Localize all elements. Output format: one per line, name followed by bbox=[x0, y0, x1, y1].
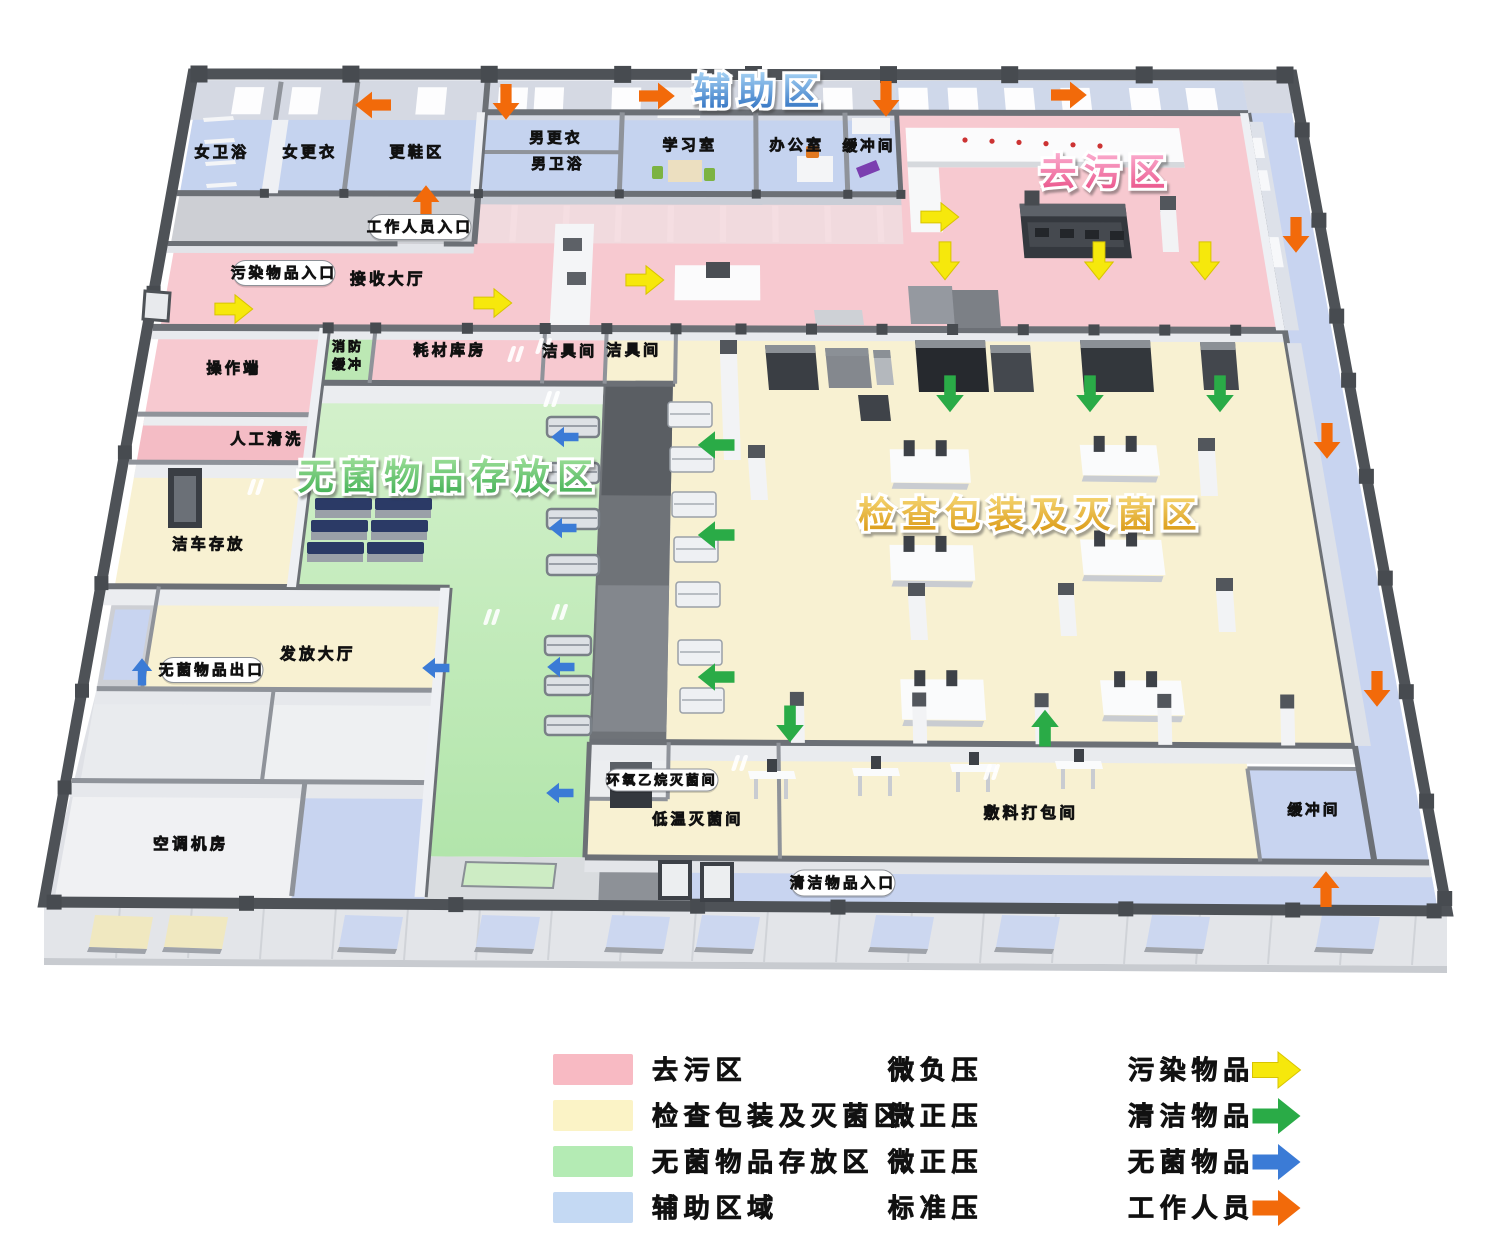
svg-text:污染物品: 污染物品 bbox=[1128, 1055, 1255, 1085]
svg-text:女更衣: 女更衣 bbox=[283, 143, 338, 161]
svg-text:缓冲: 缓冲 bbox=[332, 357, 364, 372]
svg-text:辅助区域: 辅助区域 bbox=[652, 1193, 779, 1223]
svg-text:女卫浴: 女卫浴 bbox=[195, 143, 250, 161]
svg-text:男卫浴: 男卫浴 bbox=[531, 155, 584, 173]
svg-text:空调机房: 空调机房 bbox=[153, 834, 229, 853]
svg-text:敷料打包间: 敷料打包间 bbox=[984, 803, 1079, 822]
svg-text:人工清洗: 人工清洗 bbox=[230, 430, 303, 448]
svg-text:清洁物品入口: 清洁物品入口 bbox=[790, 874, 896, 892]
svg-text:环氧乙烷灭菌间: 环氧乙烷灭菌间 bbox=[606, 773, 717, 788]
svg-text:缓冲间: 缓冲间 bbox=[842, 137, 895, 155]
svg-text:耗材库房: 耗材库房 bbox=[413, 341, 486, 359]
svg-text:清洁物品: 清洁物品 bbox=[1128, 1101, 1255, 1131]
svg-text:洁具间: 洁具间 bbox=[607, 341, 662, 359]
svg-text:接收大厅: 接收大厅 bbox=[350, 269, 426, 288]
svg-text:无菌物品存放区: 无菌物品存放区 bbox=[652, 1147, 874, 1177]
svg-text:无菌物品: 无菌物品 bbox=[1128, 1147, 1255, 1177]
svg-text:去污区: 去污区 bbox=[1039, 152, 1172, 193]
svg-text:操作端: 操作端 bbox=[207, 359, 262, 377]
svg-text:标准压: 标准压 bbox=[888, 1193, 983, 1223]
svg-text:消防: 消防 bbox=[332, 339, 364, 354]
svg-text:低温灭菌间: 低温灭菌间 bbox=[651, 810, 744, 828]
svg-text:去污区: 去污区 bbox=[652, 1055, 747, 1085]
svg-text:工作人员入口: 工作人员入口 bbox=[367, 218, 473, 236]
svg-text:检查包装及灭菌区: 检查包装及灭菌区 bbox=[652, 1101, 906, 1131]
svg-text:缓冲间: 缓冲间 bbox=[1287, 801, 1340, 819]
svg-text:男更衣: 男更衣 bbox=[529, 129, 582, 147]
svg-text:更鞋区: 更鞋区 bbox=[390, 143, 445, 161]
svg-text:无菌物品存放区: 无菌物品存放区 bbox=[298, 456, 600, 497]
svg-text:微正压: 微正压 bbox=[887, 1101, 983, 1131]
svg-text:发放大厅: 发放大厅 bbox=[279, 644, 356, 663]
svg-text:洁车存放: 洁车存放 bbox=[172, 535, 245, 553]
svg-text:洁具间: 洁具间 bbox=[543, 342, 598, 360]
svg-text:工作人员: 工作人员 bbox=[1128, 1193, 1255, 1223]
svg-text:学习室: 学习室 bbox=[663, 136, 718, 154]
svg-text:辅助区: 辅助区 bbox=[693, 71, 826, 112]
svg-text:微负压: 微负压 bbox=[887, 1055, 983, 1085]
svg-text:办公室: 办公室 bbox=[770, 136, 825, 154]
svg-text:无菌物品出口: 无菌物品出口 bbox=[159, 661, 265, 679]
svg-text:污染物品入口: 污染物品入口 bbox=[231, 264, 337, 282]
svg-text:微正压: 微正压 bbox=[887, 1147, 983, 1177]
svg-text:检查包装及灭菌区: 检查包装及灭菌区 bbox=[858, 494, 1204, 535]
